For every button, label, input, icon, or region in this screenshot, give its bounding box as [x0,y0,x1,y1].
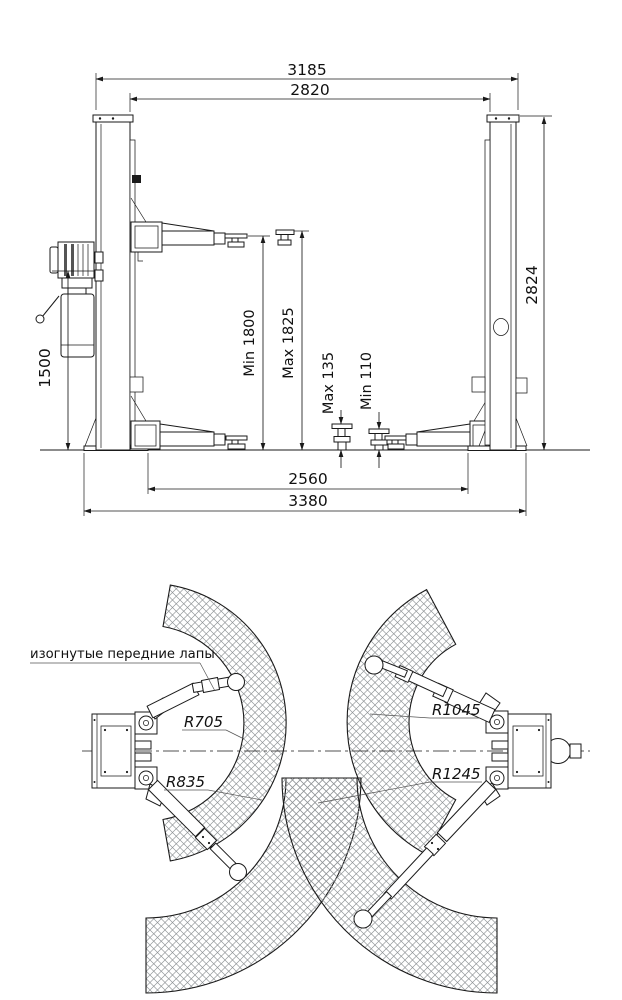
radius-r705: R705 [182,713,244,739]
radius-r1245-label: R1245 [432,765,481,783]
dim-max-1825: Max 1825 [281,231,309,450]
rear-arm-right-pad [354,910,372,928]
dim-min-1800: Min 1800 [242,236,270,450]
power-unit [36,242,103,357]
dim-max-135: Max 135 [321,352,341,468]
dim-min-110: Min 110 [359,352,379,468]
plan-view: изогнутые передние лапы R705 R835 R1045 … [30,585,590,993]
lift-technical-drawing: 3185 2820 2824 1500 Min 1800 Max 1825 [0,0,622,1000]
carriage-arm-raised [131,198,247,261]
carriage-arm-lowered-left [131,396,247,449]
cable-hole [494,319,509,336]
front-view: 3185 2820 2824 1500 Min 1800 Max 1825 [36,61,590,516]
dim-1500-label: 1500 [36,348,54,387]
radius-r835-label: R835 [166,773,205,791]
note-front-arms-label: изогнутые передние лапы [30,647,215,662]
note-front-arms: изогнутые передние лапы [30,647,215,691]
left-post [84,115,148,451]
dim-min-110-label: Min 110 [359,352,375,410]
dim-min-1800-label: Min 1800 [242,309,258,376]
carriage-lock-block [132,175,141,183]
front-arm-right-pad [365,656,383,674]
dim-2824-label: 2824 [523,265,541,304]
dim-2820: 2820 [130,81,490,112]
rear-arm-left-pad [230,864,247,881]
dim-max-135-label: Max 135 [321,352,337,414]
dim-max-1825-label: Max 1825 [281,307,297,379]
front-arm-left-pad [228,674,245,691]
carriage-arm-lowered-right [385,396,489,449]
right-post [468,115,527,451]
pad-max-135 [332,424,352,450]
radius-r1045-label: R1045 [432,701,481,719]
drawing-canvas: 3185 2820 2824 1500 Min 1800 Max 1825 [0,0,622,1000]
dim-2824: 2824 [520,116,552,450]
dim-2820-label: 2820 [290,81,329,99]
radius-r705-label: R705 [184,713,223,731]
pad-min-110 [369,429,389,450]
dim-2560: 2560 [148,453,468,494]
release-lever [42,296,59,317]
pad-max-height [276,230,294,245]
swing-area-front-right [347,590,456,855]
dim-3380-label: 3380 [288,492,327,510]
dim-3185-label: 3185 [287,61,326,79]
dim-2560-label: 2560 [288,470,327,488]
